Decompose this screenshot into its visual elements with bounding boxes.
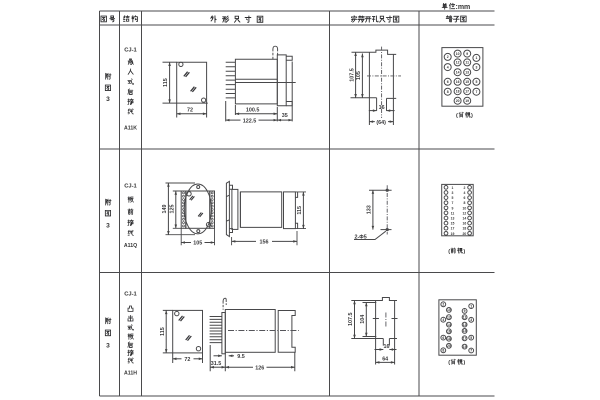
svg-text:7: 7 bbox=[475, 90, 477, 94]
svg-text:20: 20 bbox=[447, 344, 451, 348]
svg-text:2: 2 bbox=[442, 303, 444, 307]
svg-text:13: 13 bbox=[451, 217, 455, 221]
svg-text:17: 17 bbox=[465, 89, 469, 93]
svg-text:A11Q: A11Q bbox=[124, 243, 137, 249]
svg-text:115: 115 bbox=[160, 327, 166, 336]
svg-text:8: 8 bbox=[463, 201, 465, 205]
svg-text:2: 2 bbox=[447, 55, 449, 59]
svg-text:): ) bbox=[463, 249, 465, 255]
svg-text:133: 133 bbox=[367, 205, 373, 214]
svg-text:12: 12 bbox=[463, 211, 467, 215]
svg-text:72: 72 bbox=[184, 357, 190, 363]
svg-text:14: 14 bbox=[463, 217, 467, 221]
svg-text:126: 126 bbox=[255, 365, 264, 371]
svg-text:18: 18 bbox=[447, 337, 451, 341]
svg-text:(: ( bbox=[448, 249, 450, 255]
svg-text:1: 1 bbox=[475, 56, 477, 60]
svg-text:2: 2 bbox=[463, 186, 465, 190]
svg-text:105: 105 bbox=[356, 71, 362, 80]
svg-text:16: 16 bbox=[384, 344, 390, 350]
svg-text:31.5: 31.5 bbox=[211, 361, 222, 367]
svg-text:115: 115 bbox=[163, 78, 169, 87]
svg-text:20: 20 bbox=[463, 232, 467, 236]
svg-text:19: 19 bbox=[463, 345, 467, 349]
svg-text:16: 16 bbox=[447, 330, 451, 334]
svg-text:3: 3 bbox=[106, 222, 110, 229]
svg-text:3: 3 bbox=[106, 96, 110, 103]
svg-text:125: 125 bbox=[169, 205, 175, 214]
svg-text:9: 9 bbox=[464, 309, 466, 313]
svg-text:6: 6 bbox=[463, 196, 465, 200]
svg-text:64: 64 bbox=[382, 356, 388, 362]
svg-text:15: 15 bbox=[463, 329, 467, 333]
svg-text:9: 9 bbox=[466, 52, 468, 56]
svg-text:12: 12 bbox=[447, 315, 451, 319]
svg-text:18: 18 bbox=[456, 89, 460, 93]
svg-text:): ) bbox=[471, 113, 473, 119]
svg-text:14: 14 bbox=[456, 70, 460, 74]
svg-text:17: 17 bbox=[451, 227, 455, 231]
svg-text:13: 13 bbox=[465, 70, 469, 74]
svg-text:16: 16 bbox=[379, 105, 385, 111]
svg-text:(64): (64) bbox=[376, 120, 386, 126]
svg-text:9.5: 9.5 bbox=[237, 354, 245, 360]
svg-text:11: 11 bbox=[465, 61, 469, 65]
svg-text:17: 17 bbox=[463, 337, 467, 341]
svg-text:7: 7 bbox=[452, 201, 454, 205]
svg-text:3: 3 bbox=[470, 318, 472, 322]
svg-text:122.5: 122.5 bbox=[243, 118, 257, 124]
svg-text:2-Φ5: 2-Φ5 bbox=[355, 234, 367, 240]
svg-text:CJ-1: CJ-1 bbox=[124, 184, 137, 190]
svg-text:18: 18 bbox=[463, 227, 467, 231]
svg-text:8: 8 bbox=[447, 90, 449, 94]
svg-text:10: 10 bbox=[447, 308, 451, 312]
svg-text:CJ-1: CJ-1 bbox=[124, 292, 137, 298]
svg-text:12: 12 bbox=[456, 61, 460, 65]
svg-text:100.5: 100.5 bbox=[246, 108, 260, 114]
svg-text:15: 15 bbox=[465, 80, 469, 84]
svg-text:13: 13 bbox=[463, 323, 467, 327]
svg-text:4: 4 bbox=[442, 318, 444, 322]
svg-text:10: 10 bbox=[463, 206, 467, 210]
svg-text:(: ( bbox=[448, 360, 450, 366]
svg-text:107.5: 107.5 bbox=[349, 68, 355, 82]
svg-text:156: 156 bbox=[260, 240, 269, 246]
svg-text:): ) bbox=[463, 360, 465, 366]
svg-text:16: 16 bbox=[463, 222, 467, 226]
svg-text:4: 4 bbox=[447, 65, 449, 69]
svg-text:(: ( bbox=[456, 113, 458, 119]
svg-text::mm: :mm bbox=[456, 4, 471, 11]
svg-text:5: 5 bbox=[470, 336, 472, 340]
svg-text:35: 35 bbox=[282, 113, 288, 119]
svg-text:115: 115 bbox=[297, 206, 303, 215]
svg-text:A11K: A11K bbox=[124, 125, 137, 131]
svg-text:CJ-1: CJ-1 bbox=[124, 47, 137, 53]
svg-text:7: 7 bbox=[470, 349, 472, 353]
svg-text:4: 4 bbox=[463, 191, 465, 195]
svg-text:3: 3 bbox=[475, 65, 477, 69]
svg-text:107.5: 107.5 bbox=[348, 312, 354, 326]
svg-text:5: 5 bbox=[452, 196, 454, 200]
svg-text:A11H: A11H bbox=[124, 371, 137, 377]
svg-text:14: 14 bbox=[447, 323, 451, 327]
svg-text:20: 20 bbox=[456, 99, 460, 103]
svg-text:72: 72 bbox=[187, 108, 193, 114]
svg-text:19: 19 bbox=[451, 232, 455, 236]
svg-text:6: 6 bbox=[447, 80, 449, 84]
svg-text:11: 11 bbox=[463, 315, 467, 319]
svg-text:19: 19 bbox=[465, 99, 469, 103]
svg-text:5: 5 bbox=[475, 80, 477, 84]
svg-text:3: 3 bbox=[106, 343, 110, 350]
svg-text:1: 1 bbox=[470, 304, 472, 308]
svg-text:1: 1 bbox=[452, 186, 454, 190]
svg-text:8: 8 bbox=[442, 349, 444, 353]
svg-text:11: 11 bbox=[451, 211, 455, 215]
svg-text:6: 6 bbox=[442, 336, 444, 340]
svg-text:3: 3 bbox=[452, 191, 454, 195]
svg-text:105: 105 bbox=[193, 241, 202, 247]
svg-text:149: 149 bbox=[162, 205, 168, 214]
svg-text:16: 16 bbox=[456, 80, 460, 84]
svg-text:104: 104 bbox=[360, 315, 366, 324]
svg-text:9: 9 bbox=[452, 206, 454, 210]
svg-text:10: 10 bbox=[456, 52, 460, 56]
svg-text:15: 15 bbox=[451, 222, 455, 226]
